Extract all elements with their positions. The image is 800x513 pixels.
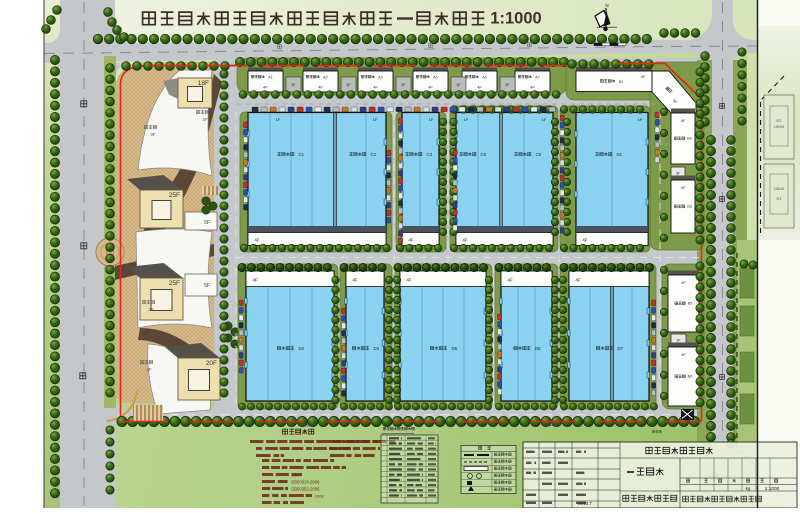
svg-text:1F: 1F	[373, 117, 378, 122]
svg-text:C2: C2	[370, 152, 376, 157]
svg-text:4F: 4F	[681, 280, 686, 285]
svg-text:4F: 4F	[575, 278, 581, 283]
svg-text:4F: 4F	[318, 85, 323, 90]
svg-text:2009: 2009	[291, 474, 299, 478]
svg-text:A2: A2	[323, 76, 328, 80]
svg-text:C1: C1	[298, 152, 304, 157]
svg-text:kg: kg	[746, 486, 751, 491]
svg-text:D2: D2	[298, 346, 304, 351]
svg-text:E1: E1	[777, 196, 783, 201]
svg-text:B5: B5	[688, 302, 693, 306]
svg-text:1F: 1F	[542, 117, 547, 122]
svg-text:4F: 4F	[254, 238, 260, 243]
svg-text:D1: D1	[616, 152, 622, 157]
svg-text:A7: A7	[535, 76, 540, 80]
svg-text:20F: 20F	[206, 360, 217, 367]
svg-text:4F: 4F	[681, 185, 686, 190]
svg-text:4F: 4F	[681, 118, 686, 123]
svg-text:1F: 1F	[464, 117, 469, 122]
svg-text:1F: 1F	[638, 117, 643, 122]
svg-text:GB50016-2006: GB50016-2006	[291, 480, 320, 485]
svg-text:25F: 25F	[169, 192, 180, 199]
svg-text:A1: A1	[268, 76, 273, 80]
svg-text:4F: 4F	[507, 278, 513, 283]
svg-text:1:1000: 1:1000	[490, 10, 541, 28]
svg-text:3F: 3F	[150, 132, 156, 137]
svg-text:D5: D5	[451, 346, 457, 351]
svg-text:4F: 4F	[582, 238, 588, 243]
svg-text:4F: 4F	[373, 85, 378, 90]
svg-text:B6: B6	[688, 375, 693, 379]
svg-text:4F: 4F	[428, 85, 433, 90]
svg-text:N: N	[605, 3, 608, 8]
svg-text:4F: 4F	[408, 238, 414, 243]
svg-text:2F: 2F	[677, 339, 681, 343]
svg-text:4F: 4F	[406, 278, 412, 283]
svg-text:140.00: 140.00	[774, 125, 784, 129]
svg-text:A6: A6	[482, 76, 487, 80]
svg-text:D3: D3	[373, 346, 379, 351]
svg-text:4F: 4F	[462, 238, 468, 243]
svg-text:C6: C6	[535, 152, 541, 157]
svg-text:5F: 5F	[204, 220, 210, 226]
svg-text:3F: 3F	[148, 307, 154, 312]
svg-text:A5: A5	[433, 76, 438, 80]
svg-text:2013.7: 2013.7	[578, 501, 592, 506]
svg-text:4F: 4F	[641, 74, 646, 79]
svg-text:4F: 4F	[263, 85, 268, 90]
svg-text:B3: B3	[687, 205, 692, 209]
svg-text:1F: 1F	[276, 117, 281, 122]
svg-text:3F: 3F	[146, 367, 152, 372]
svg-text:B2: B2	[687, 137, 692, 141]
svg-text:138.00: 138.00	[774, 187, 784, 191]
svg-text:2008: 2008	[315, 495, 323, 499]
svg-text:1:1000: 1:1000	[765, 486, 780, 492]
svg-text:A3: A3	[378, 76, 383, 80]
svg-text:3F: 3F	[202, 117, 208, 122]
svg-text:3F: 3F	[676, 172, 680, 176]
svg-text:1F: 1F	[429, 117, 434, 122]
svg-text:D7: D7	[617, 346, 623, 351]
svg-text:4F: 4F	[352, 278, 358, 283]
svg-text:D6: D6	[535, 346, 541, 351]
svg-text:E2: E2	[777, 118, 783, 123]
svg-text:GB50352-2005: GB50352-2005	[291, 487, 320, 492]
svg-text:B1: B1	[619, 79, 625, 84]
svg-text:5F: 5F	[204, 283, 210, 289]
svg-text:4F: 4F	[477, 85, 482, 90]
svg-text:18F: 18F	[198, 80, 209, 87]
svg-text:4F: 4F	[252, 278, 258, 283]
svg-text:C3: C3	[426, 152, 432, 157]
svg-text:4F: 4F	[530, 85, 535, 90]
svg-text:25F: 25F	[169, 280, 180, 287]
svg-text:C5: C5	[480, 152, 486, 157]
svg-text:4F: 4F	[681, 352, 686, 357]
